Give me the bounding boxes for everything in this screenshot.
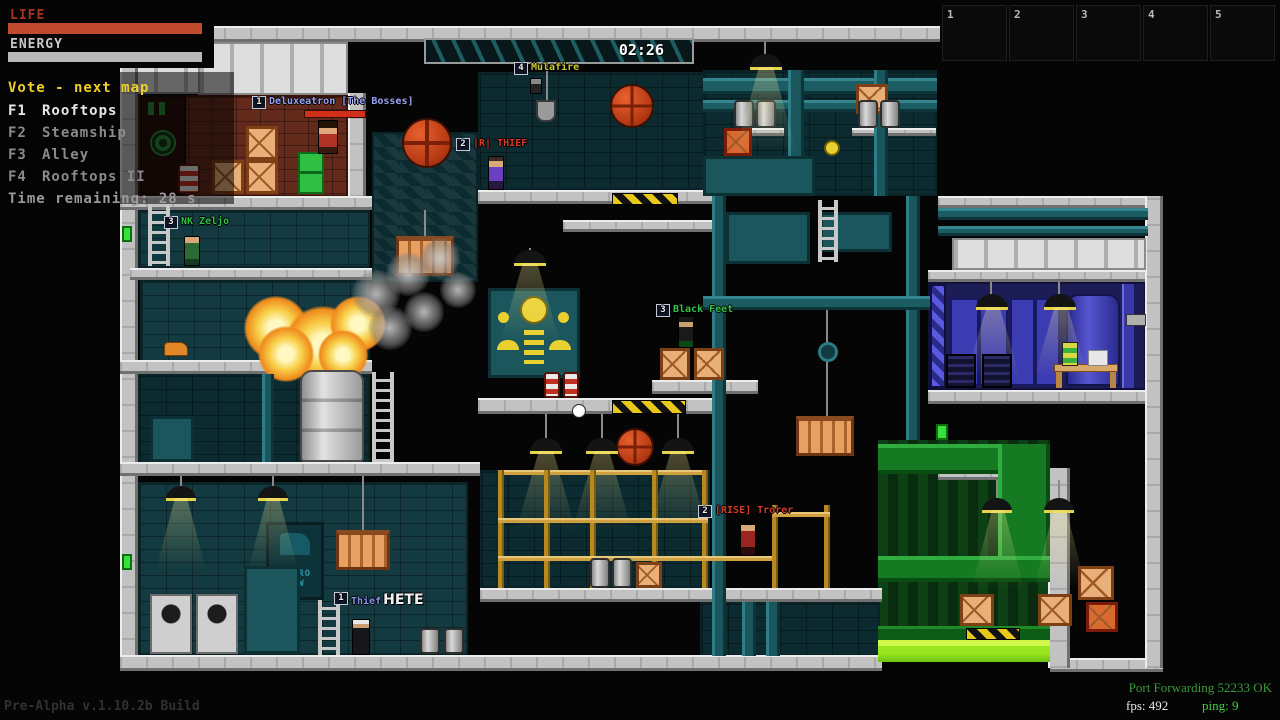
beam-left-2 [130,268,372,280]
crate [246,160,278,194]
port-forwarding-status: Port Forwarding 52233 OK [1129,680,1272,696]
game-canvas[interactable]: METRO RAW [0,0,1280,720]
player-sprite-thief [352,619,370,655]
desk-leg [1056,372,1062,388]
crate [636,562,662,588]
vote-menu-title: Vote - next map [8,76,197,100]
beam-right-top [938,196,1163,208]
green-pipe-low [878,556,1050,582]
wall-center-top [478,72,710,190]
player-name: Black Feet [673,304,733,315]
chain [1058,480,1060,498]
hazard-stripe [612,193,678,205]
chain [996,480,998,498]
terminal [946,354,976,388]
player-name: Mulafire [531,62,579,73]
ping-value: 9 [1232,698,1239,713]
beam-right-3 [928,390,1163,404]
green-rail [878,626,1050,640]
platform-crates [652,380,758,394]
crate-red [1086,602,1118,632]
player-badge: 3 [164,216,178,229]
inventory-slot-4[interactable]: 4 [1143,5,1208,61]
pipe-vertical-tall [712,196,726,656]
chat-overlay-text: HETE [383,592,423,608]
barrel [444,628,464,654]
barrel [420,628,440,654]
player-sprite-mulafire [530,78,542,94]
acid-pool [878,640,1050,662]
crate [1078,566,1114,600]
crate [660,348,690,380]
scaffold-bar [498,518,708,523]
chain [424,210,426,236]
player-name: Deluxeatron [The Bosses] [269,96,414,107]
machine-washer [150,594,192,654]
security-camera [1126,314,1146,326]
striped-barrel [544,372,560,398]
inventory-slot-1[interactable]: 1 [942,5,1007,61]
player-badge: 1 [252,96,266,109]
vote-key: F2 [8,122,42,144]
hanging-crate [336,530,390,570]
crate [960,594,994,626]
slot-number: 5 [1215,8,1222,21]
beam-left-4 [120,462,480,476]
match-timer: 02:26 [424,41,664,59]
crane-hook [536,100,556,122]
desk-leg [1110,372,1116,388]
build-version-label: Pre-Alpha v.1.10.2b Build [4,699,200,714]
exit-light [936,424,948,440]
fps-counter: fps: 492 [1126,698,1168,714]
machine-panel [244,566,300,654]
ladder [372,372,394,462]
red-ball [616,428,654,466]
vote-label: Steamship [42,125,127,141]
player-name: Thief [351,596,381,607]
fps-value: 492 [1149,698,1169,713]
beam-right-2 [928,270,1163,282]
pipe-vertical [742,602,756,656]
player-sprite-black-feet [678,316,694,348]
inventory-slot-2[interactable]: 2 [1009,5,1074,61]
striped-barrel [563,372,579,398]
energy-bar [8,52,202,62]
folder-stack [1062,342,1078,366]
player-badge: 1 [334,592,348,605]
vote-label: Alley [42,147,89,163]
red-ball [610,84,654,128]
pipe-horizontal [703,78,937,94]
life-label: LIFE [10,8,45,23]
cabinet-row-right [952,238,1146,270]
blue-window [930,284,946,388]
ping-label: ping: [1202,698,1229,713]
barrel [880,100,900,128]
orange-creature [164,342,188,356]
red-ball [402,118,452,168]
chain [601,414,603,438]
player-tag-nk-zeljo: 3NK Zeljo [164,216,229,229]
pulley-wheel [818,342,838,362]
chain [764,42,766,54]
beam-bottom-mid [480,588,882,602]
slot-number: 3 [1081,8,1088,21]
player-badge: 2 [456,138,470,151]
player-badge: 2 [698,505,712,518]
scaffold-post [498,470,504,588]
player-sprite-trorer [740,524,756,556]
inventory-slot-5[interactable]: 5 [1210,5,1275,61]
barrel [590,558,610,588]
player-tag-trorer: 2[RISE] Trorer [698,505,793,518]
vote-menu: Vote - next map F1Rooftops F2Steamship F… [8,76,197,210]
crate [694,348,724,380]
life-bar [8,23,202,34]
pipe-vertical [906,196,920,440]
machine-panel [726,212,810,264]
floor-main [120,655,882,671]
scaffold-post [702,470,708,588]
vote-key: F4 [8,166,42,188]
vote-label: Rooftops [42,103,117,119]
pipe-horizontal [938,226,1148,236]
player-sprite-nk-zeljo [184,236,200,266]
inventory-slots: 1 2 3 4 5 [942,5,1275,61]
machine-panel [150,416,194,462]
player-tag-r-thief: 2|R| THIEF [456,138,527,151]
soccer-ball [572,404,586,418]
crate [246,126,278,160]
slot-number: 1 [947,8,954,21]
hazard-stripe [966,628,1020,640]
player-sprite-deluxeatron [318,120,338,154]
valve-wheel [824,140,840,156]
hanging-crate [796,416,854,456]
ladder [318,600,340,655]
player-name: |R| THIEF [473,138,527,149]
player-badge: 4 [514,62,528,75]
player-health-bar [304,110,366,118]
filing-cabinet [298,152,324,194]
vote-label: Rooftops II [42,169,146,185]
player-name: [RISE] Trorer [715,505,793,516]
player-badge: 3 [656,304,670,317]
terminal [982,354,1012,388]
vote-time-remaining: Time remaining: 28 s [8,188,197,210]
vote-option-f3[interactable]: F3Alley [8,144,197,166]
inventory-slot-3[interactable]: 3 [1076,5,1141,61]
smoke [368,306,412,350]
scaffold-post [824,505,830,588]
fps-label: fps: [1126,698,1146,713]
blue-pipe [1122,284,1136,388]
crate [1038,594,1072,626]
chain [545,414,547,438]
vote-option-f4[interactable]: F4Rooftops II [8,166,197,188]
scaffold-plank [498,470,708,475]
pipe-horizontal [938,208,1148,220]
chain [826,362,828,416]
barrel [858,100,878,128]
player-name: NK Zeljo [181,216,229,227]
vote-key: F1 [8,100,42,122]
pipe-vertical [766,602,780,656]
silver-tank [300,370,364,462]
chain [826,310,828,342]
machine-washer [196,594,238,654]
hazard-stripe [612,400,686,414]
scaffold-bar [498,556,778,561]
furnace-light [558,312,569,323]
ladder [148,204,170,266]
smoke [440,272,476,308]
player-tag-thief: 1ThiefHETE [334,592,424,608]
wall-under-floor [700,602,880,656]
exit-light [122,554,132,570]
pipe-horizontal [703,296,937,310]
player-tag-black-feet: 3Black Feet [656,304,733,317]
vote-option-f2[interactable]: F2Steamship [8,122,197,144]
chain [362,476,364,530]
papers [1088,350,1108,366]
vote-option-f1[interactable]: F1Rooftops [8,100,197,122]
slot-number: 4 [1148,8,1155,21]
ladder [818,200,838,262]
player-tag-deluxeatron: 1Deluxeatron [The Bosses] [252,96,414,109]
exit-light [122,226,132,242]
machine-panel [703,156,815,196]
ping-counter: ping: 9 [1202,698,1238,714]
slot-number: 2 [1014,8,1021,21]
beam-center-2 [563,220,713,232]
vote-key: F3 [8,144,42,166]
player-tag-mulafire: 4Mulafire [514,62,579,75]
barrel [612,558,632,588]
pipe-vertical [262,374,274,462]
player-sprite-r-thief [488,156,504,190]
energy-label: ENERGY [10,37,63,52]
ledge-barrels-2 [852,128,936,136]
chain [677,414,679,438]
wall-right [1145,196,1163,668]
scaffold-post [544,470,550,588]
